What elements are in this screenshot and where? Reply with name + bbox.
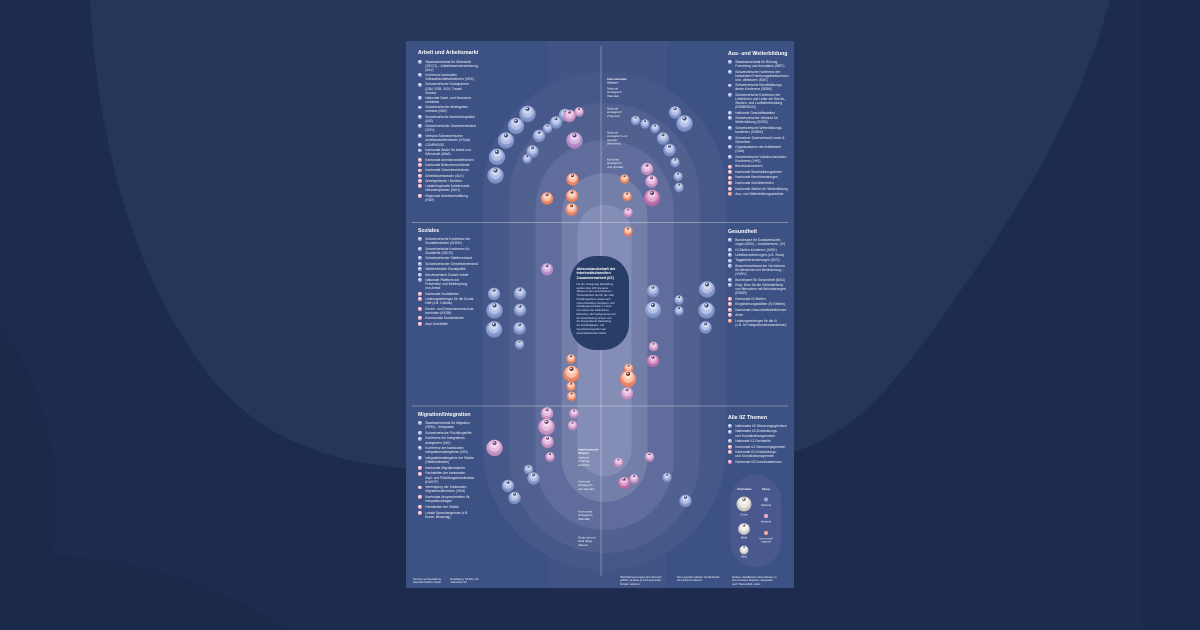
svg-text:Gross: Gross xyxy=(741,513,749,517)
svg-text:Kantone(ThemenAufsicht): Kantone(ThemenAufsicht) xyxy=(578,456,590,467)
svg-text:National: National xyxy=(761,503,771,507)
svg-text:Mittel: Mittel xyxy=(741,536,748,540)
svg-text:Reichweite: Reichweite xyxy=(738,487,753,491)
svg-text:Ebene: Ebene xyxy=(762,487,771,491)
svg-text:Kantonal: Kantonal xyxy=(761,520,772,524)
svg-text:Klein: Klein xyxy=(741,555,747,559)
